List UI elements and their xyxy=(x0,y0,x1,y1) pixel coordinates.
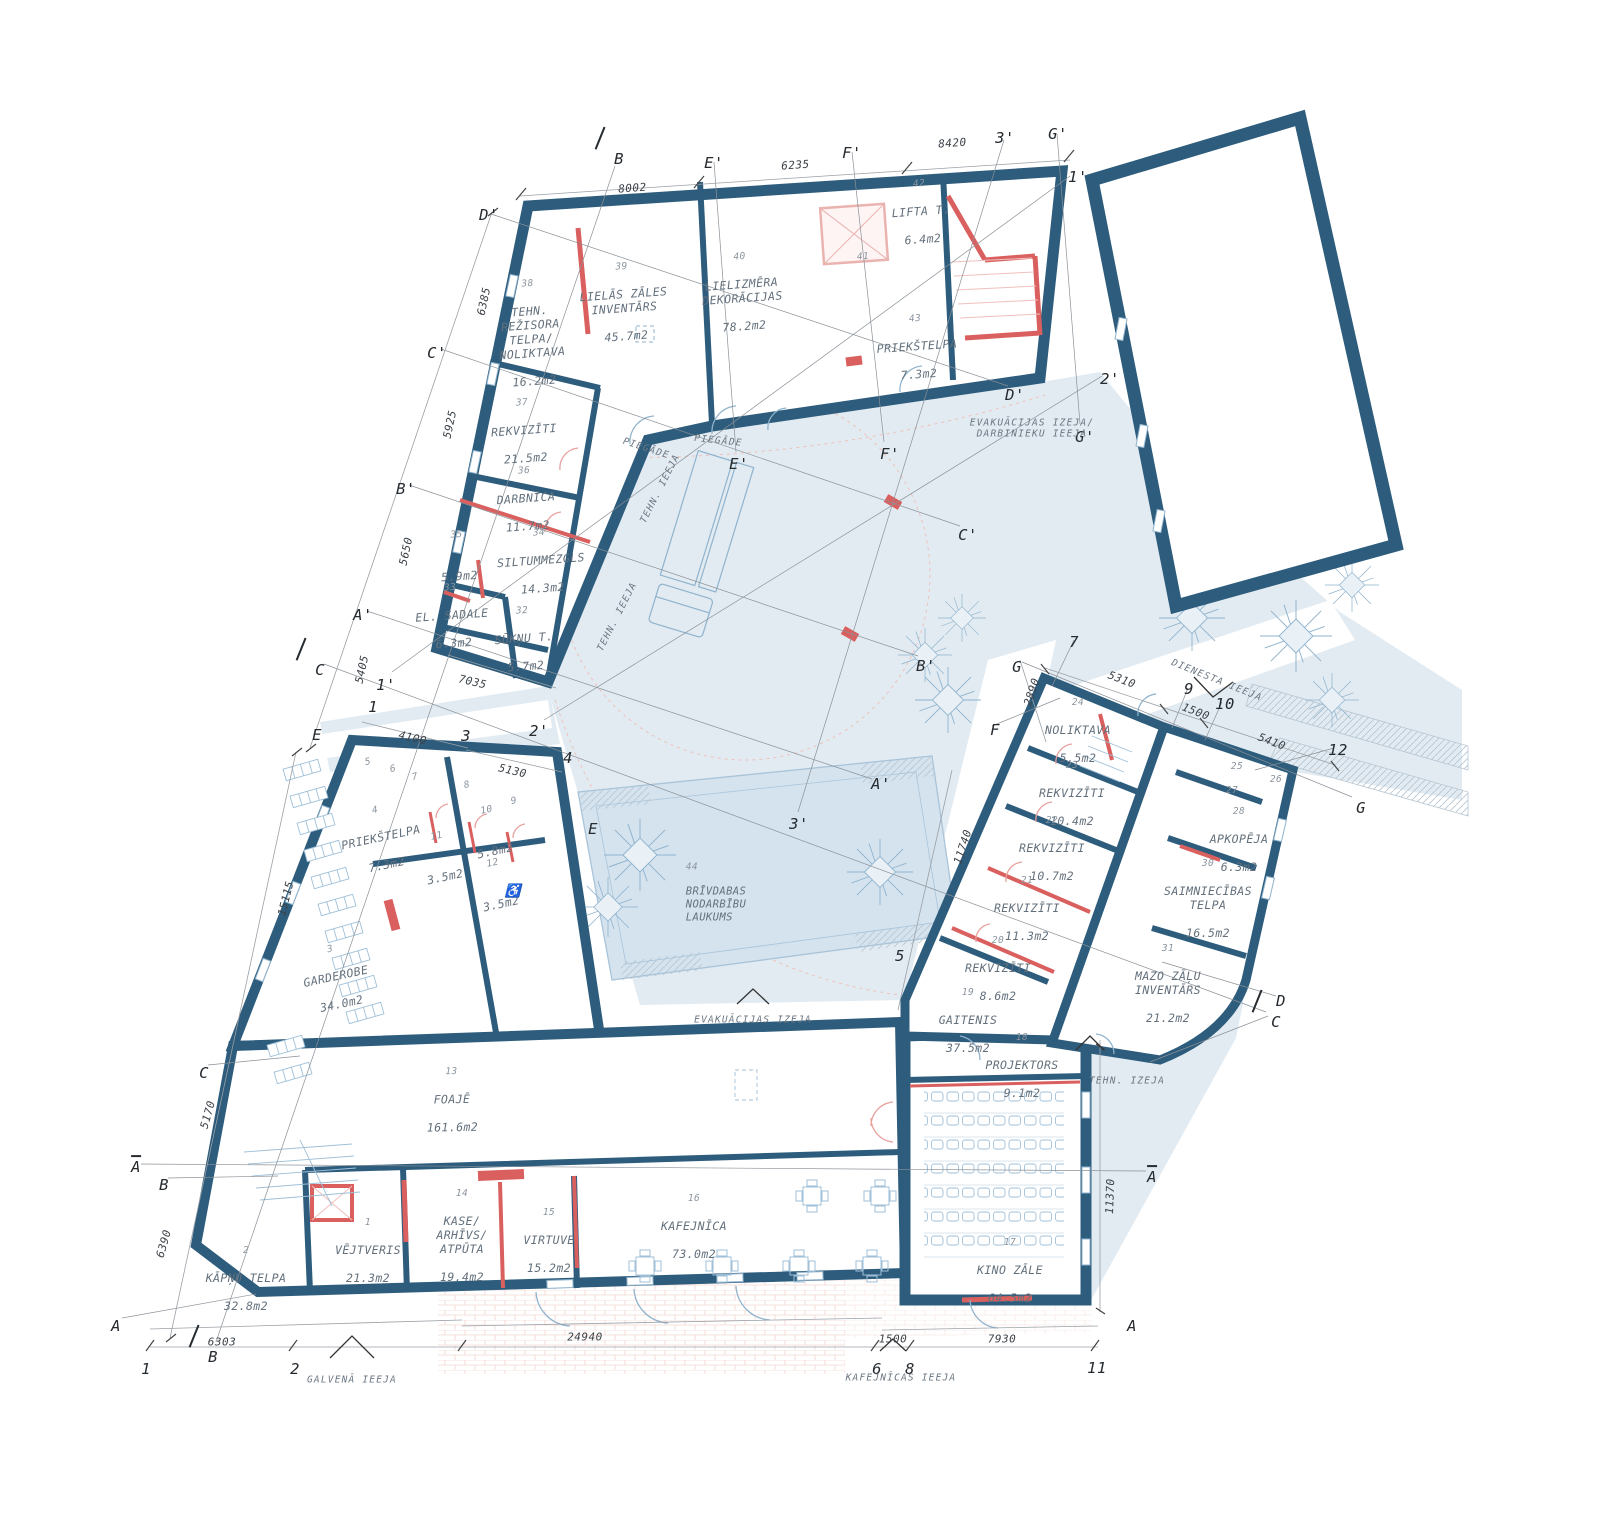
floor-plan-canvas xyxy=(0,0,1600,1515)
floor-plan: 38 TEHN. REŽISORA TELPA/ NOLIKTAVA 16.2m… xyxy=(0,0,1600,1515)
cinema-seats xyxy=(924,1090,1064,1258)
